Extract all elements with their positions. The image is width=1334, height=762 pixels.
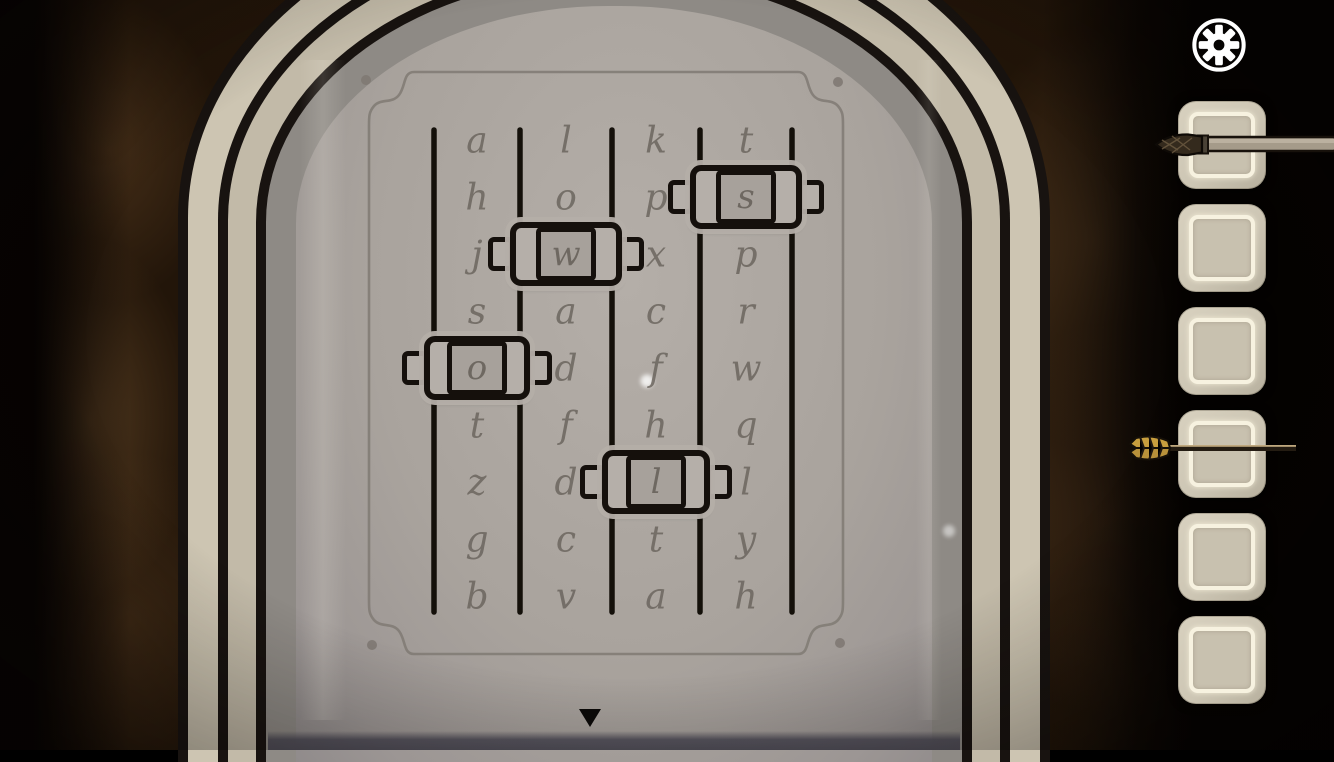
inventory-slot-6[interactable]	[1178, 616, 1266, 704]
inventory-slot-ring	[1189, 318, 1255, 384]
brush-bristles	[1156, 134, 1202, 155]
inventory-slot-5[interactable]	[1178, 513, 1266, 601]
paintbrush-item[interactable]	[1148, 126, 1334, 164]
inventory-slot-2[interactable]	[1178, 204, 1266, 292]
inventory-slot-ring	[1189, 524, 1255, 590]
arrow-item[interactable]	[1126, 432, 1298, 464]
gear-icon	[1190, 16, 1248, 74]
inventory-slot-ring	[1189, 215, 1255, 281]
hud-layer	[0, 0, 1334, 750]
inventory-slot-ring	[1189, 627, 1255, 693]
triangle-down-icon	[575, 706, 605, 730]
settings-button[interactable]	[1190, 16, 1248, 74]
navigate-down-button[interactable]	[568, 700, 612, 736]
inventory-slot-3[interactable]	[1178, 307, 1266, 395]
game-screen: { "scene": "stone-door-letter-slider-puz…	[0, 0, 1334, 750]
